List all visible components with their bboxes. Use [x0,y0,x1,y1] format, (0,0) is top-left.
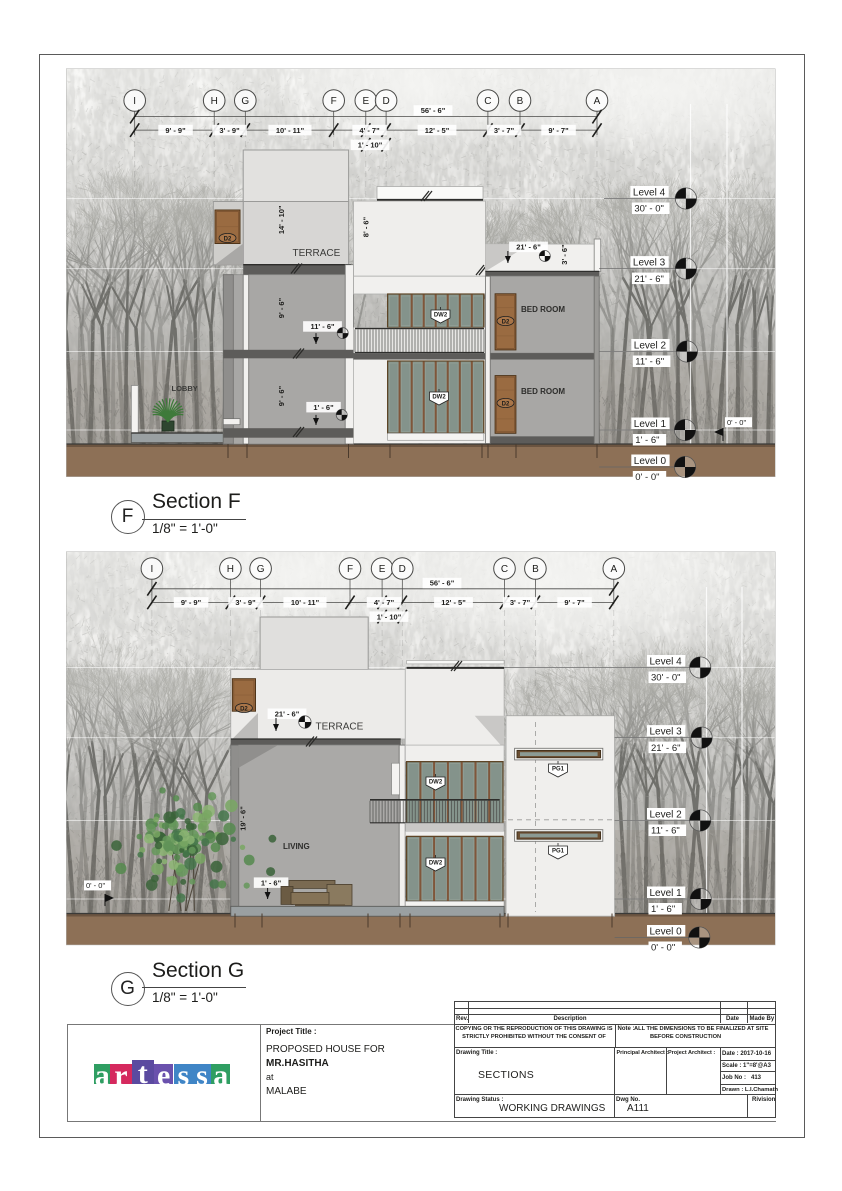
svg-text:1' - 10": 1' - 10" [358,141,383,150]
svg-text:BED ROOM: BED ROOM [521,387,565,396]
svg-text:BED ROOM: BED ROOM [521,305,565,314]
svg-text:A: A [594,96,601,107]
svg-text:21' - 6": 21' - 6" [651,743,680,754]
svg-text:4' - 7": 4' - 7" [374,598,395,607]
svg-text:21' - 6": 21' - 6" [275,710,300,719]
svg-text:3' - 6": 3' - 6" [560,244,569,265]
svg-text:TERRACE: TERRACE [293,248,341,259]
svg-text:F: F [347,564,353,575]
svg-text:1' - 6": 1' - 6" [261,878,282,887]
svg-text:D: D [382,96,389,107]
svg-text:4' - 7": 4' - 7" [359,126,380,135]
svg-text:I: I [133,96,136,107]
svg-text:0' - 0": 0' - 0" [651,943,675,954]
svg-text:12' - 5": 12' - 5" [425,126,450,135]
svg-text:0' - 0": 0' - 0" [86,881,105,890]
svg-text:LIVING: LIVING [283,842,310,851]
svg-text:A: A [610,564,617,575]
svg-text:B: B [532,564,539,575]
svg-text:3' - 9": 3' - 9" [235,598,256,607]
svg-text:9' - 9": 9' - 9" [181,598,202,607]
svg-text:11' - 6": 11' - 6" [310,322,335,331]
svg-text:11' - 6": 11' - 6" [635,357,664,368]
svg-text:56' - 6": 56' - 6" [421,106,446,115]
svg-text:Level 2: Level 2 [650,810,683,821]
svg-text:10' - 11": 10' - 11" [276,126,305,135]
svg-text:H: H [227,564,234,575]
svg-text:TERRACE: TERRACE [316,722,364,733]
svg-text:LOBBY: LOBBY [172,384,198,393]
svg-text:Level 4: Level 4 [633,188,666,199]
svg-text:D: D [399,564,406,575]
svg-text:D2: D2 [502,401,510,407]
svg-text:11' - 6": 11' - 6" [651,826,680,837]
svg-text:Level 3: Level 3 [650,727,683,738]
svg-text:3' - 9": 3' - 9" [219,126,240,135]
svg-text:PG1: PG1 [552,767,565,773]
svg-text:Level 1: Level 1 [634,419,667,430]
svg-text:56' - 6": 56' - 6" [430,579,455,588]
svg-text:DW2: DW2 [429,780,443,786]
svg-text:10' - 11": 10' - 11" [291,598,320,607]
svg-text:DW2: DW2 [432,395,446,401]
svg-text:30' - 0": 30' - 0" [651,673,680,684]
svg-text:3' - 7": 3' - 7" [494,126,515,135]
svg-text:19' - 6": 19' - 6" [239,806,248,831]
svg-text:21' - 6": 21' - 6" [516,243,541,252]
svg-text:Level 3: Level 3 [633,258,666,269]
svg-text:B: B [517,96,524,107]
svg-text:DW2: DW2 [429,861,443,867]
svg-text:C: C [484,96,491,107]
svg-text:0' - 0": 0' - 0" [727,418,746,427]
svg-text:E: E [362,96,369,107]
svg-text:9' - 7": 9' - 7" [548,126,569,135]
svg-text:Level 1: Level 1 [650,888,683,899]
svg-text:9' - 9": 9' - 9" [165,126,186,135]
svg-text:1' - 10": 1' - 10" [377,612,402,621]
svg-text:8' - 6": 8' - 6" [362,216,371,237]
svg-text:9' - 6": 9' - 6" [277,297,286,318]
svg-text:30' - 0": 30' - 0" [634,204,663,215]
svg-text:9' - 6": 9' - 6" [277,385,286,406]
svg-text:PG1: PG1 [552,849,565,855]
svg-text:G: G [241,96,249,107]
svg-text:1' - 6": 1' - 6" [651,904,675,915]
svg-text:I: I [151,564,154,575]
svg-text:9' - 7": 9' - 7" [564,598,585,607]
svg-text:D2: D2 [224,236,232,242]
svg-text:1' - 6": 1' - 6" [313,403,334,412]
svg-text:Level 0: Level 0 [650,927,683,938]
svg-text:1' - 6": 1' - 6" [635,435,659,446]
svg-text:21' - 6": 21' - 6" [634,274,663,285]
svg-text:C: C [501,564,508,575]
svg-text:Level 2: Level 2 [634,341,667,352]
svg-text:E: E [379,564,386,575]
svg-text:Level 0: Level 0 [634,456,667,467]
svg-text:DW2: DW2 [434,313,448,319]
svg-text:Level 4: Level 4 [650,657,683,668]
svg-text:14' - 10": 14' - 10" [277,205,286,234]
svg-text:G: G [257,564,265,575]
svg-text:H: H [211,96,218,107]
svg-text:F: F [331,96,337,107]
svg-text:D2: D2 [240,706,248,712]
svg-text:3' - 7": 3' - 7" [510,598,531,607]
svg-text:0' - 0": 0' - 0" [635,472,659,483]
svg-text:D2: D2 [502,319,510,325]
svg-text:12' - 5": 12' - 5" [441,598,466,607]
